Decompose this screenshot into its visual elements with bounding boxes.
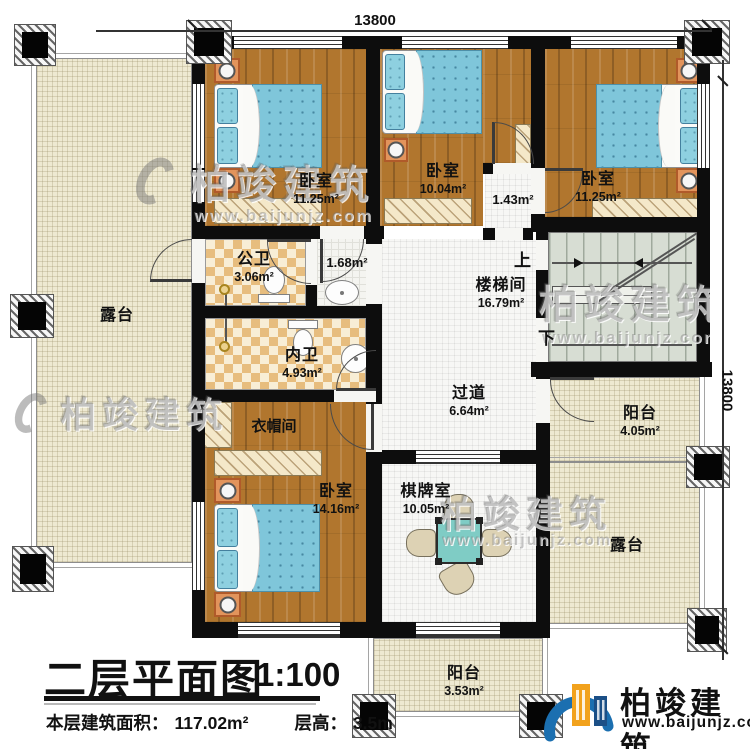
nightstand (384, 138, 408, 162)
nightstand (214, 478, 241, 503)
floor-area-label: 本层建筑面积： (46, 710, 169, 735)
toilet-icon (258, 294, 290, 303)
table-corner (435, 517, 442, 524)
stair-hall-corridor-floor (382, 239, 536, 452)
floor-area-value: 117.02m² (175, 713, 249, 734)
pillar (10, 294, 54, 338)
lamp-icon (219, 172, 236, 189)
dimension-top-value: 13800 (340, 12, 410, 29)
room-label-cloakroom: 衣帽间 (238, 418, 310, 437)
wardrobe (214, 450, 322, 476)
room-label-public-bath: 公卫 3.06m² (218, 250, 290, 286)
wardrobe (204, 402, 232, 448)
sink-icon (325, 280, 359, 305)
lamp-icon (681, 172, 698, 189)
floor-plan: 柏竣建筑 www.baijunjz.com 柏竣建筑 www.baijunjz.… (0, 0, 750, 749)
title-rule (44, 696, 320, 701)
nightstand (214, 592, 241, 617)
wardrobe (384, 198, 472, 224)
pillar (14, 24, 56, 66)
room-label-bedroom-top-mid: 卧室 10.04m² (400, 162, 486, 198)
stair-down-label: 下 (538, 324, 555, 349)
door-opening (334, 390, 376, 402)
wall (531, 217, 710, 232)
room-label-bedroom-bottom: 卧室 14.16m² (292, 482, 380, 518)
room-area: 4.05m² (604, 424, 676, 440)
pillow (217, 88, 238, 124)
room-name: 阳台 (604, 404, 676, 424)
room-name: 卧室 (272, 172, 360, 192)
room-area: 10.05m² (386, 502, 466, 518)
lamp-icon (388, 142, 405, 159)
room-name: 露台 (598, 536, 656, 556)
room-name: 内卫 (266, 346, 338, 366)
room-name: 公卫 (218, 250, 290, 270)
door-opening (366, 244, 382, 304)
dimension-line-top (96, 30, 712, 32)
mattress (416, 50, 482, 134)
room-label-bedroom-top-left: 卧室 11.25m² (272, 172, 360, 208)
lamp-icon (219, 596, 236, 613)
game-table (436, 518, 482, 564)
room-label-stairwell: 楼梯间 16.79m² (458, 276, 544, 312)
room-label-terrace-right: 露台 (598, 536, 656, 556)
room-name: 过道 (432, 384, 506, 404)
nightstand (214, 168, 240, 193)
lamp-icon (219, 62, 236, 79)
chair (406, 529, 436, 557)
room-label-balcony-right: 阳台 4.05m² (604, 404, 676, 440)
dimension-right-value: 13800 (719, 356, 736, 426)
room-area: 14.16m² (292, 502, 380, 518)
bed-sheet-fold (658, 85, 675, 167)
pillar (12, 546, 54, 592)
room-name: 阳台 (428, 664, 500, 684)
table-corner (435, 558, 442, 565)
room-name: 卧室 (292, 482, 380, 502)
room-label-bedroom-top-right: 卧室 11.25m² (554, 170, 642, 206)
door-opening (495, 228, 523, 240)
room-area: 6.64m² (432, 404, 506, 420)
room-label-corridor: 过道 6.64m² (432, 384, 506, 420)
room-area: 10.04m² (400, 182, 486, 198)
window (192, 84, 205, 168)
room-label-hall-small: 1.43m² (482, 192, 544, 208)
stair-guide-line (552, 262, 692, 264)
room-label-balcony-bottom: 阳台 3.53m² (428, 664, 500, 700)
shower-rod (225, 294, 227, 342)
sliding-door (416, 450, 500, 464)
mattress (596, 84, 662, 168)
room-area: 3.53m² (428, 684, 500, 700)
pillow (217, 550, 238, 589)
door-opening (320, 226, 364, 239)
table-corner (476, 517, 483, 524)
room-label-game-room: 棋牌室 10.05m² (386, 482, 466, 518)
sliding-door (416, 622, 500, 638)
stair-opening (536, 240, 548, 270)
pillow (217, 508, 238, 547)
room-name: 露台 (88, 306, 146, 326)
window (234, 36, 342, 49)
room-area: 11.25m² (554, 190, 642, 206)
wall (192, 306, 378, 318)
door-opening (536, 379, 550, 423)
room-label-private-bath: 内卫 4.93m² (266, 346, 338, 382)
room-name: 卧室 (400, 162, 486, 182)
window (697, 84, 710, 168)
window (192, 170, 205, 202)
window (402, 36, 508, 49)
pillow (217, 127, 238, 164)
brand-url: www.baijunjz.com (622, 714, 750, 732)
room-area: 1.43m² (482, 192, 544, 208)
plan-info: 本层建筑面积：117.02m²层高：3.5m (46, 710, 393, 735)
room-area: 1.68m² (316, 255, 378, 271)
window (571, 36, 677, 49)
room-name: 楼梯间 (458, 276, 544, 296)
room-label-wash-area: 1.68m² (316, 255, 378, 271)
plan-scale: 1:100 (256, 656, 340, 694)
drain-icon (219, 341, 230, 352)
room-name: 卧室 (554, 170, 642, 190)
door-opening (192, 239, 205, 283)
room-area: 4.93m² (266, 366, 338, 382)
brand-logo-icon (534, 674, 622, 746)
chair (482, 529, 512, 557)
room-label-terrace-left: 露台 (88, 306, 146, 326)
toilet-icon (288, 320, 318, 329)
mattress (252, 84, 322, 168)
room-name: 棋牌室 (386, 482, 466, 502)
floor-height-value: 3.5m (353, 713, 393, 734)
drain-icon (219, 284, 230, 295)
window (192, 502, 205, 590)
lamp-icon (681, 62, 698, 79)
lamp-icon (219, 482, 236, 499)
stair-up-label: 上 (514, 246, 531, 271)
room-area: 11.25m² (272, 192, 360, 208)
stair-arrow-icon (574, 258, 583, 268)
title-rule-shadow (44, 703, 316, 705)
pillow (385, 54, 405, 90)
window (238, 622, 340, 638)
wall (531, 362, 712, 377)
room-area: 3.06m² (218, 270, 290, 286)
stair-guide-line (552, 344, 692, 346)
room-name: 衣帽间 (238, 418, 310, 437)
pillow (385, 93, 405, 130)
door-opening (493, 163, 531, 174)
wall (366, 42, 380, 232)
floor-height-label: 层高： (294, 710, 347, 735)
room-area: 16.79m² (458, 296, 544, 312)
table-corner (476, 558, 483, 565)
